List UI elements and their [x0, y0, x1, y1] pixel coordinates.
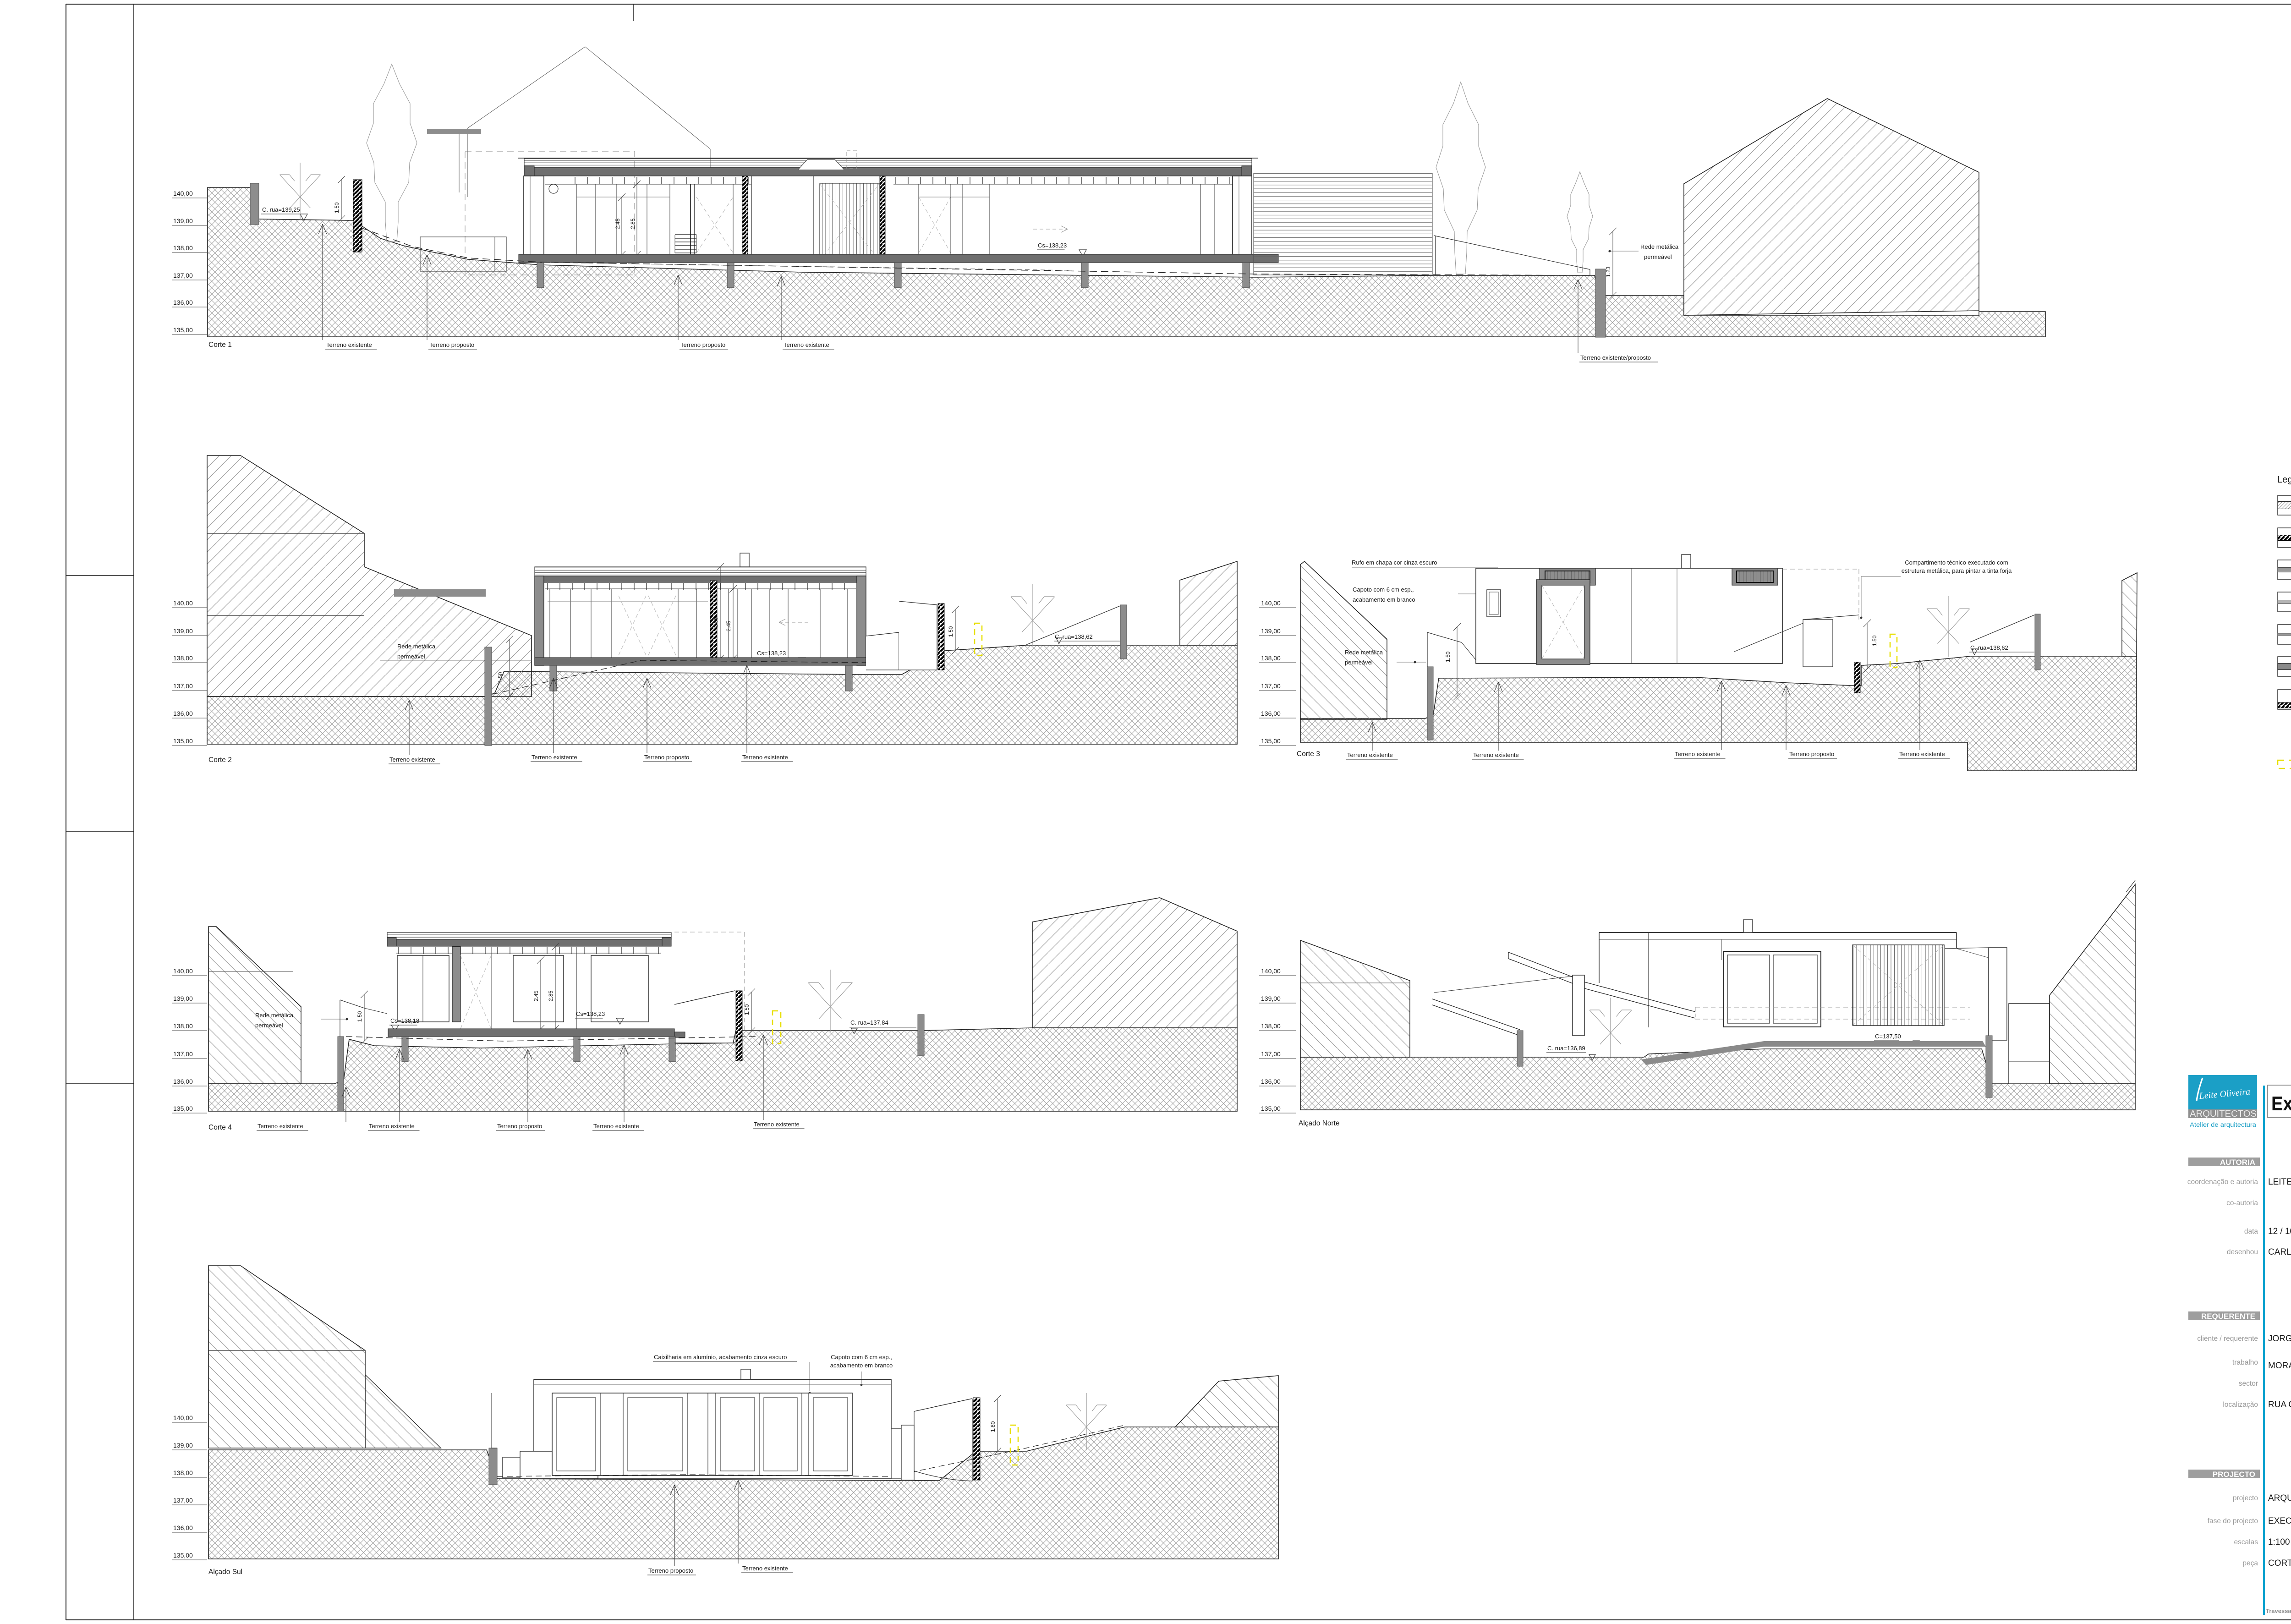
svg-text:C. rua=136,89: C. rua=136,89 — [1547, 1045, 1585, 1052]
svg-text:1.50: 1.50 — [356, 1011, 363, 1022]
svg-text:2.45: 2.45 — [725, 620, 732, 631]
svg-text:136,00: 136,00 — [173, 1078, 193, 1085]
svg-text:Rede metálica: Rede metálica — [397, 643, 436, 650]
svg-text:Terreno existente: Terreno existente — [784, 341, 829, 348]
svg-text:Cs=138,23: Cs=138,23 — [576, 1010, 605, 1017]
svg-text:AUTORIA: AUTORIA — [2220, 1158, 2255, 1167]
svg-text:1.50: 1.50 — [948, 626, 954, 637]
svg-text:Cs=138,23: Cs=138,23 — [1038, 242, 1067, 249]
svg-text:Rufo em chapa cor cinza escuro: Rufo em chapa cor cinza escuro — [1352, 559, 1437, 566]
svg-text:137,00: 137,00 — [1261, 682, 1281, 690]
svg-text:137,00: 137,00 — [173, 682, 193, 690]
svg-text:sector: sector — [2239, 1380, 2258, 1388]
svg-text:trabalho: trabalho — [2232, 1359, 2258, 1366]
svg-text:JORGE MIGUEL DE OLIVEIRA MEIRA: JORGE MIGUEL DE OLIVEIRA MEIRA E CÁTIA C… — [2268, 1334, 2291, 1344]
svg-text:1:100: 1:100 — [2268, 1537, 2290, 1547]
svg-text:1.50: 1.50 — [1871, 635, 1878, 646]
svg-text:138,00: 138,00 — [173, 1469, 193, 1476]
svg-text:desenhou: desenhou — [2227, 1248, 2258, 1256]
svg-text:C. rua=138,62: C. rua=138,62 — [1970, 644, 2008, 651]
svg-text:Caixilharia em alumínio, acaba: Caixilharia em alumínio, acabamento cinz… — [654, 1354, 787, 1361]
svg-text:ARQUITECTOS: ARQUITECTOS — [2190, 1109, 2257, 1119]
svg-text:EXECUÇÃO: EXECUÇÃO — [2268, 1516, 2291, 1526]
svg-text:1.50: 1.50 — [497, 672, 504, 683]
svg-text:136,00: 136,00 — [173, 1524, 193, 1531]
svg-text:Terreno existente: Terreno existente — [389, 756, 435, 763]
svg-text:localização: localização — [2223, 1401, 2258, 1409]
svg-text:Corte 2: Corte 2 — [208, 756, 232, 764]
svg-text:ARQUITECTURA: ARQUITECTURA — [2268, 1493, 2291, 1503]
svg-text:PROJECTO: PROJECTO — [2213, 1470, 2255, 1479]
svg-text:Terreno existente: Terreno existente — [593, 1123, 639, 1130]
svg-text:RUA CIMA DE PELE, JOANE - V. N: RUA CIMA DE PELE, JOANE - V. N. FAMALICÃ… — [2268, 1399, 2291, 1410]
svg-text:Terreno existente: Terreno existente — [1347, 752, 1393, 758]
svg-text:12 / 10 / 2019: 12 / 10 / 2019 — [2268, 1227, 2291, 1236]
svg-text:139,00: 139,00 — [1261, 995, 1281, 1002]
svg-text:1.80: 1.80 — [990, 1421, 996, 1432]
svg-text:co-autoria: co-autoria — [2226, 1199, 2258, 1207]
svg-text:permeável: permeável — [397, 653, 425, 660]
svg-text:136,00: 136,00 — [1261, 1078, 1281, 1085]
svg-text:140,00: 140,00 — [1261, 599, 1281, 607]
svg-text:coordenação e autoria: coordenação e autoria — [2187, 1178, 2258, 1186]
svg-text:Cs=138,23: Cs=138,23 — [757, 650, 786, 657]
svg-text:138,00: 138,00 — [173, 654, 193, 662]
svg-text:140,00: 140,00 — [1261, 967, 1281, 975]
svg-text:acabamento em branco: acabamento em branco — [1353, 596, 1415, 603]
svg-text:135,00: 135,00 — [1261, 737, 1281, 745]
svg-text:CORTES E ALÇADOS: CORTES E ALÇADOS — [2268, 1558, 2291, 1568]
svg-text:Terreno proposto: Terreno proposto — [680, 341, 725, 348]
svg-text:Legenda: Composição das parede: Legenda: Composição das paredes — [2277, 475, 2291, 485]
svg-text:135,00: 135,00 — [173, 326, 193, 334]
svg-text:Terreno existente: Terreno existente — [369, 1123, 415, 1130]
svg-text:C. rua=138,62: C. rua=138,62 — [1055, 633, 1093, 640]
svg-text:Terreno proposto: Terreno proposto — [644, 754, 689, 761]
svg-text:139,00: 139,00 — [173, 627, 193, 635]
svg-text:Capoto com 6 cm esp.,: Capoto com 6 cm esp., — [1353, 586, 1414, 593]
svg-text:140,00: 140,00 — [173, 190, 193, 197]
svg-text:Terreno existente: Terreno existente — [1473, 752, 1519, 758]
svg-text:Terreno existente: Terreno existente — [742, 1565, 788, 1572]
svg-text:138,00: 138,00 — [1261, 654, 1281, 662]
svg-text:Terreno proposto: Terreno proposto — [497, 1123, 542, 1130]
svg-text:Ex-03.0: Ex-03.0 — [2271, 1092, 2291, 1115]
svg-text:Corte 3: Corte 3 — [1297, 750, 1320, 758]
svg-text:Terreno existente: Terreno existente — [742, 754, 788, 761]
svg-text:Cs=138,18: Cs=138,18 — [390, 1017, 419, 1024]
svg-text:C=137,50: C=137,50 — [1875, 1033, 1901, 1040]
svg-text:2.45: 2.45 — [614, 218, 621, 229]
svg-text:136,00: 136,00 — [173, 710, 193, 717]
svg-text:C. rua=139,25: C. rua=139,25 — [262, 206, 300, 213]
svg-text:1.50: 1.50 — [334, 202, 340, 213]
svg-text:permeável: permeável — [255, 1022, 283, 1029]
svg-text:136,00: 136,00 — [173, 299, 193, 306]
svg-text:estrutura metálica, para pinta: estrutura metálica, para pintar a tinta … — [1902, 567, 2012, 574]
svg-text:138,00: 138,00 — [173, 244, 193, 252]
svg-text:2.45: 2.45 — [533, 990, 539, 1001]
svg-text:Travessa da Arcela, nº 45 - 48: Travessa da Arcela, nº 45 - 4810 554 COS… — [2266, 1608, 2291, 1614]
svg-text:1.23: 1.23 — [1605, 266, 1611, 277]
svg-text:139,00: 139,00 — [173, 995, 193, 1002]
svg-text:138,00: 138,00 — [1261, 1022, 1281, 1030]
svg-text:140,00: 140,00 — [173, 967, 193, 975]
svg-text:Atelier de arquitectura: Atelier de arquitectura — [2190, 1121, 2256, 1128]
svg-text:140,00: 140,00 — [173, 1414, 193, 1421]
svg-text:Alçado Norte: Alçado Norte — [1299, 1119, 1340, 1127]
svg-text:Corte 1: Corte 1 — [208, 341, 232, 349]
svg-text:REQUERENTE: REQUERENTE — [2201, 1312, 2255, 1321]
svg-text:Terreno proposto: Terreno proposto — [648, 1567, 693, 1574]
svg-text:135,00: 135,00 — [173, 737, 193, 745]
svg-text:1.50: 1.50 — [744, 1004, 750, 1015]
svg-text:Terreno proposto: Terreno proposto — [429, 341, 474, 348]
svg-text:projecto: projecto — [2233, 1494, 2258, 1502]
svg-text:permeável: permeável — [1644, 253, 1672, 260]
svg-text:acabamento em branco: acabamento em branco — [830, 1362, 893, 1369]
svg-text:Terreno existente: Terreno existente — [532, 754, 577, 761]
svg-text:data: data — [2244, 1228, 2258, 1235]
svg-text:137,00: 137,00 — [1261, 1050, 1281, 1058]
svg-text:C. rua=137,84: C. rua=137,84 — [850, 1019, 888, 1026]
svg-text:CARLOS OLIVEIRA, Arqtº: CARLOS OLIVEIRA, Arqtº — [2268, 1247, 2291, 1257]
svg-text:MORADIA UNIFAMILIAR: MORADIA UNIFAMILIAR — [2268, 1361, 2291, 1371]
svg-text:2.85: 2.85 — [713, 617, 719, 628]
svg-text:2.85: 2.85 — [630, 218, 636, 229]
svg-text:Terreno existente: Terreno existente — [1899, 751, 1945, 757]
svg-text:fase do projecto: fase do projecto — [2208, 1517, 2258, 1525]
svg-text:Rede metálica: Rede metálica — [255, 1012, 294, 1019]
svg-text:139,00: 139,00 — [173, 1442, 193, 1449]
svg-text:permeável: permeável — [1345, 659, 1373, 666]
svg-text:Terreno existente/proposto: Terreno existente/proposto — [1580, 354, 1651, 361]
svg-text:peça: peça — [2242, 1559, 2258, 1567]
svg-text:escalas: escalas — [2234, 1538, 2258, 1546]
svg-text:139,00: 139,00 — [173, 217, 193, 225]
svg-text:Alçado Sul: Alçado Sul — [208, 1568, 242, 1576]
svg-text:Terreno existente: Terreno existente — [754, 1121, 800, 1128]
svg-text:Terreno proposto: Terreno proposto — [1789, 751, 1834, 757]
svg-text:135,00: 135,00 — [1261, 1105, 1281, 1112]
svg-text:137,00: 137,00 — [173, 272, 193, 279]
svg-text:1.50: 1.50 — [1445, 651, 1451, 662]
svg-text:Capoto com 6 cm esp.,: Capoto com 6 cm esp., — [831, 1354, 892, 1361]
svg-text:138,00: 138,00 — [173, 1022, 193, 1030]
svg-text:Rede metálica: Rede metálica — [1345, 649, 1383, 656]
svg-text:Rede metálica: Rede metálica — [1640, 243, 1679, 250]
svg-text:cliente / requerente: cliente / requerente — [2197, 1335, 2258, 1343]
svg-text:135,00: 135,00 — [173, 1552, 193, 1559]
svg-text:Terreno existente: Terreno existente — [258, 1123, 303, 1130]
svg-text:137,00: 137,00 — [173, 1497, 193, 1504]
svg-text:LEITE OLIVEIRA, ARQUITECTOS: LEITE OLIVEIRA, ARQUITECTOS — [2268, 1177, 2291, 1187]
svg-text:135,00: 135,00 — [173, 1105, 193, 1112]
svg-text:2.85: 2.85 — [548, 990, 554, 1001]
svg-text:136,00: 136,00 — [1261, 710, 1281, 717]
svg-text:Compartimento técnico executad: Compartimento técnico executado com — [1905, 559, 2008, 566]
svg-text:Terreno existente: Terreno existente — [1675, 751, 1721, 757]
svg-text:Corte 4: Corte 4 — [208, 1124, 232, 1131]
svg-text:Terreno existente: Terreno existente — [326, 341, 372, 348]
svg-text:137,00: 137,00 — [173, 1050, 193, 1058]
svg-text:139,00: 139,00 — [1261, 627, 1281, 635]
svg-text:140,00: 140,00 — [173, 599, 193, 607]
